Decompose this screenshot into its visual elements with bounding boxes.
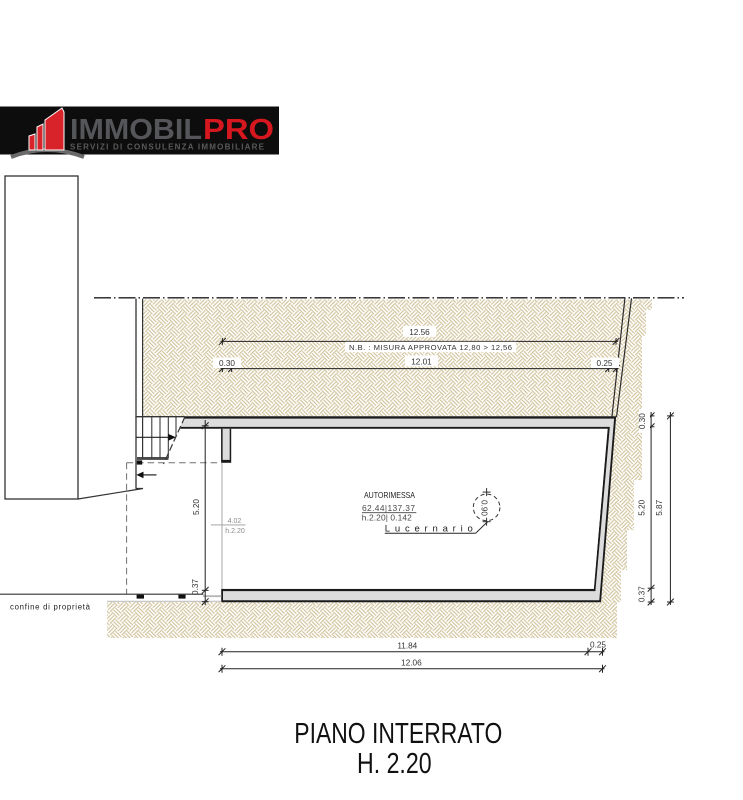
svg-text:PIANO INTERRATO: PIANO INTERRATO (294, 718, 502, 750)
svg-text:SERVIZI DI CONSULENZA IMMOBILI: SERVIZI DI CONSULENZA IMMOBILIARE (70, 143, 265, 152)
svg-text:62.44|137.37: 62.44|137.37 (362, 503, 415, 513)
svg-text:5.20: 5.20 (638, 499, 647, 515)
svg-text:5.20: 5.20 (192, 499, 201, 515)
svg-text:PRO: PRO (203, 114, 274, 146)
svg-text:0.37: 0.37 (638, 586, 647, 602)
svg-text:5.87: 5.87 (655, 499, 664, 515)
svg-text:h.2.20: h.2.20 (225, 528, 245, 535)
svg-text:11.84: 11.84 (397, 641, 417, 650)
svg-text:h.2.20| 0.142: h.2.20| 0.142 (362, 513, 412, 523)
svg-text:IMMOBIL: IMMOBIL (70, 114, 202, 146)
svg-text:0.90: 0.90 (480, 500, 489, 516)
svg-text:0.30: 0.30 (219, 359, 235, 368)
svg-text:12.01: 12.01 (411, 357, 432, 366)
svg-text:4.02: 4.02 (228, 518, 242, 525)
svg-text:0.30: 0.30 (638, 413, 647, 429)
svg-text:H. 2.20: H. 2.20 (357, 748, 432, 780)
svg-text:12.06: 12.06 (401, 658, 422, 667)
svg-text:0.25: 0.25 (590, 641, 606, 650)
svg-text:AUTORIMESSA: AUTORIMESSA (364, 490, 415, 500)
svg-text:confine di proprietà: confine di proprietà (10, 603, 91, 612)
svg-text:N.B. : MISURA APPROVATA 12,80: N.B. : MISURA APPROVATA 12,80 > 12,56 (349, 343, 512, 352)
svg-text:12.56: 12.56 (409, 328, 430, 337)
svg-text:0.37: 0.37 (191, 579, 200, 595)
svg-text:0.25: 0.25 (597, 359, 613, 368)
